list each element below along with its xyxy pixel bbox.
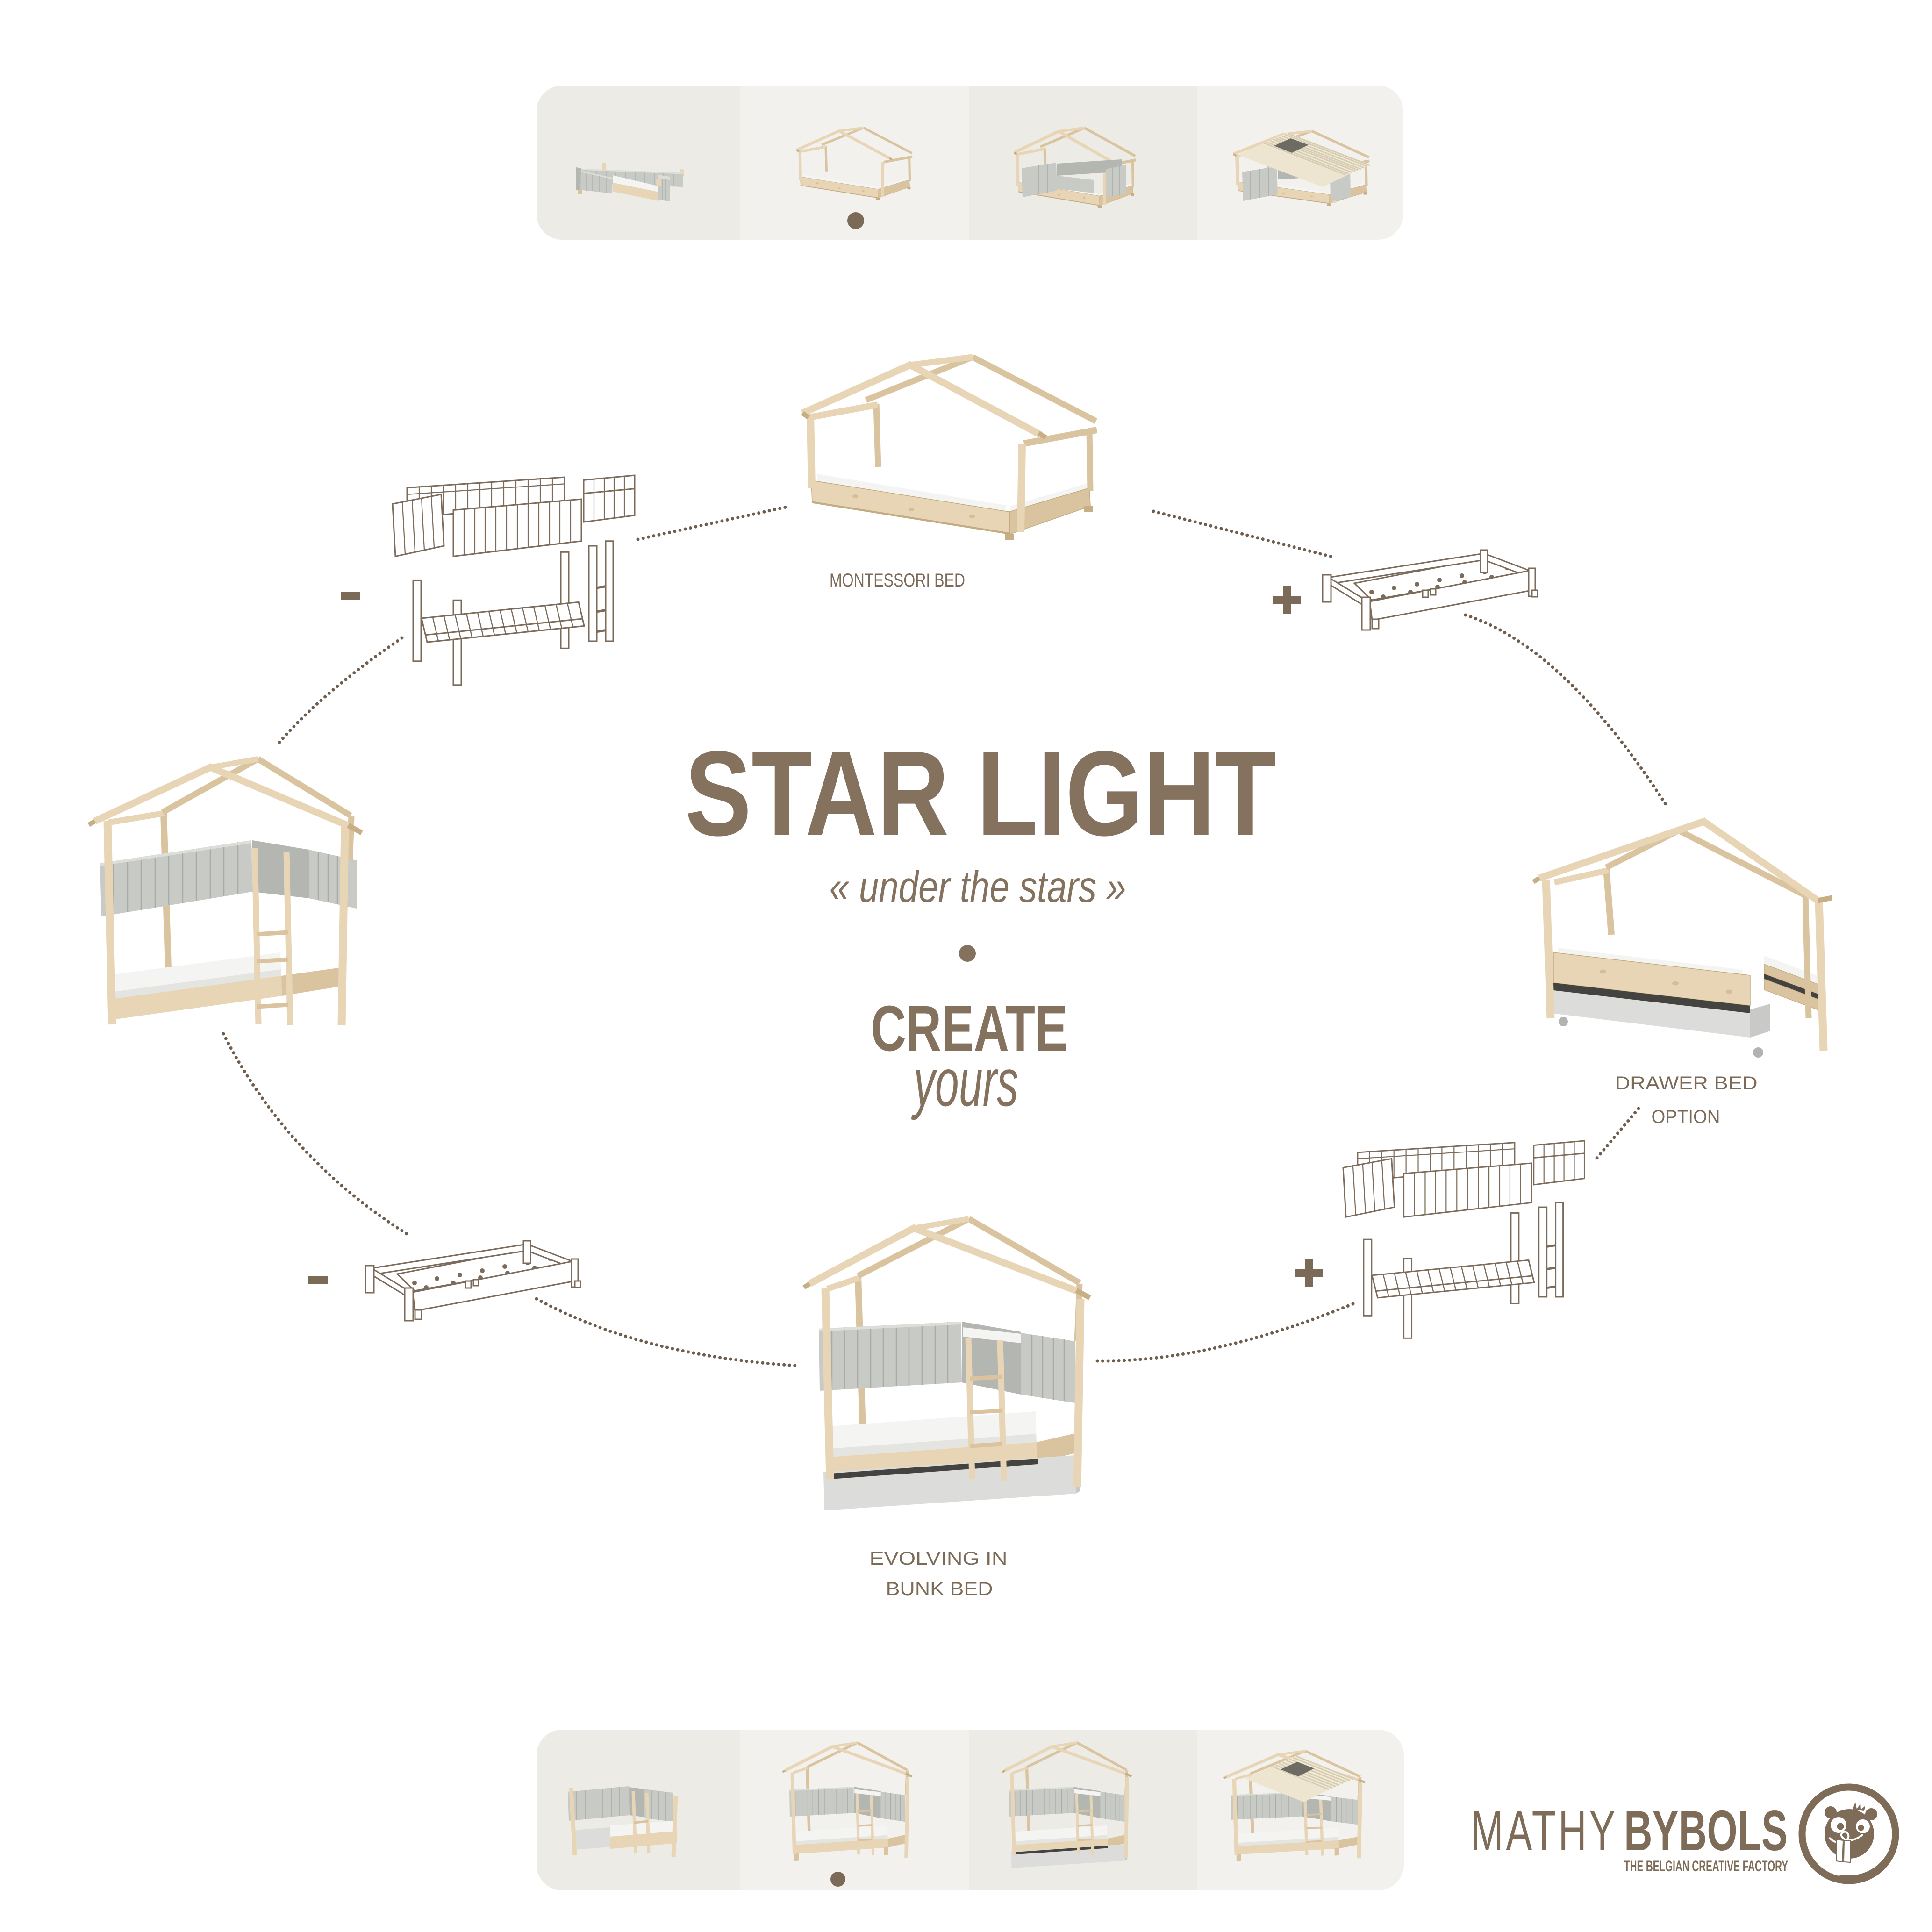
svg-text:MONTESSORI BED: MONTESSORI BED [830, 570, 965, 591]
svg-text:EVOLVING IN: EVOLVING IN [870, 1548, 1008, 1569]
svg-text:DRAWER BED: DRAWER BED [1615, 1073, 1758, 1094]
svg-text:THE BELGIAN CREATIVE FACTORY: THE BELGIAN CREATIVE FACTORY [1624, 1858, 1788, 1875]
svg-text:BYBOLS: BYBOLS [1624, 1799, 1788, 1862]
svg-text:OPTION: OPTION [1652, 1107, 1720, 1127]
svg-text:BUNK BED: BUNK BED [886, 1579, 993, 1599]
svg-text:yours: yours [911, 1045, 1018, 1120]
svg-text:« under the stars »: « under the stars » [830, 862, 1126, 912]
svg-text:STAR LIGHT: STAR LIGHT [685, 726, 1276, 861]
svg-text:MATHY: MATHY [1471, 1799, 1618, 1862]
